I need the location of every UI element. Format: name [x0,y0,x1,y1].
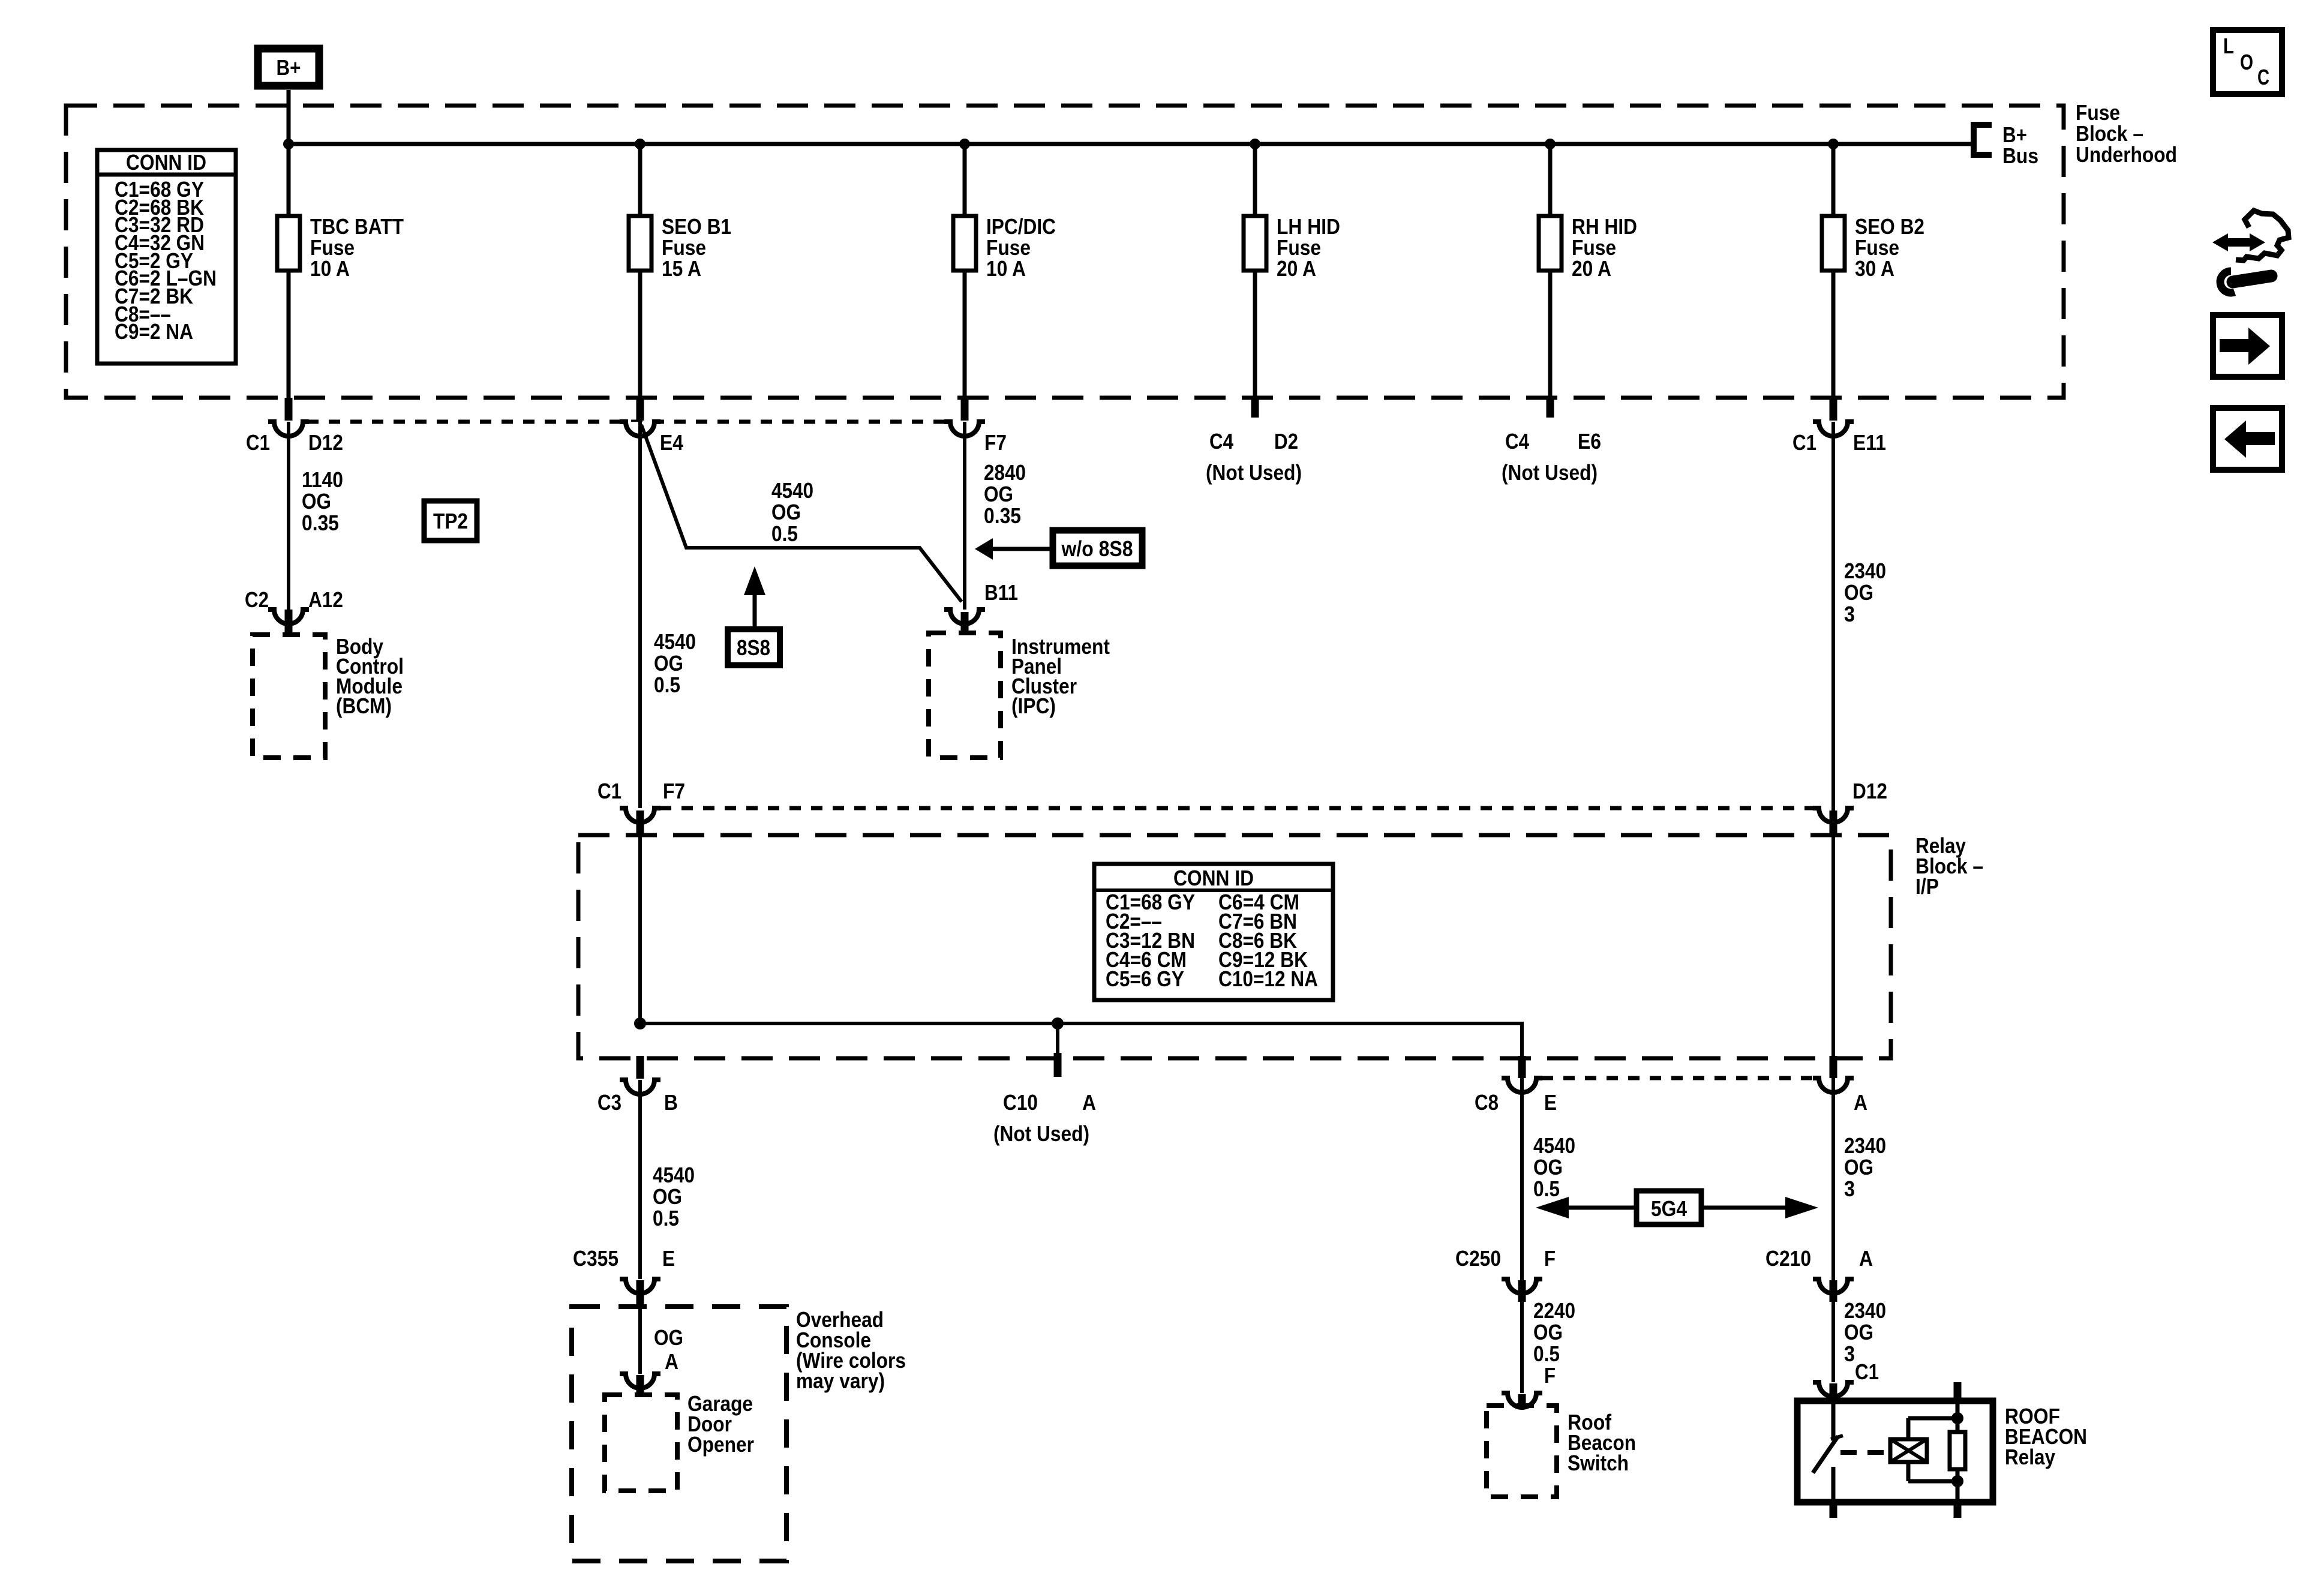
svg-text:OG: OG [1844,1320,1873,1344]
svg-text:0.5: 0.5 [771,521,798,546]
svg-text:3: 3 [1844,1341,1855,1366]
svg-text:0.5: 0.5 [1533,1176,1560,1201]
svg-text:4540: 4540 [654,629,696,654]
svg-text:Opener: Opener [687,1432,754,1457]
svg-text:5G4: 5G4 [1651,1196,1687,1221]
svg-text:C5=6 GY: C5=6 GY [1106,966,1184,991]
svg-text:C1: C1 [246,430,270,455]
svg-text:E: E [1544,1090,1557,1115]
svg-text:Relay: Relay [2005,1445,2055,1469]
svg-text:C3: C3 [597,1090,621,1115]
svg-text:C8: C8 [1475,1090,1499,1115]
svg-text:C10=12 NA: C10=12 NA [1218,966,1318,991]
svg-text:C4: C4 [1209,429,1233,454]
svg-text:3: 3 [1844,1176,1855,1201]
svg-text:OG: OG [1844,1155,1873,1179]
svg-text:OG: OG [654,1325,683,1350]
svg-text:C250: C250 [1455,1246,1501,1271]
svg-text:0.35: 0.35 [984,503,1021,528]
svg-text:(IPC): (IPC) [1011,694,1056,718]
svg-text:C355: C355 [573,1246,618,1271]
svg-text:(Not Used): (Not Used) [1206,460,1302,485]
svg-text:Underhood: Underhood [2076,142,2177,167]
svg-text:D2: D2 [1274,429,1298,454]
svg-text:1140: 1140 [302,467,343,492]
svg-text:C210: C210 [1765,1246,1811,1271]
svg-text:C9=2 NA: C9=2 NA [115,319,193,344]
svg-text:A: A [1082,1090,1096,1115]
svg-text:C2: C2 [245,587,269,612]
svg-text:D12: D12 [308,430,343,455]
svg-text:30 A: 30 A [1855,256,1894,281]
svg-text:B: B [664,1090,678,1115]
svg-text:C1: C1 [1855,1359,1879,1384]
svg-text:OG: OG [1844,580,1873,605]
svg-text:F7: F7 [663,779,685,803]
svg-text:OG: OG [302,489,331,514]
svg-text:15 A: 15 A [662,256,701,281]
svg-text:E: E [662,1246,675,1271]
svg-text:OG: OG [1533,1320,1563,1344]
svg-text:0.5: 0.5 [653,1206,679,1230]
svg-text:4540: 4540 [1533,1133,1575,1158]
svg-text:D12: D12 [1852,779,1887,803]
svg-text:F7: F7 [984,430,1007,455]
svg-text:Bus: Bus [2002,143,2038,168]
svg-text:E11: E11 [1853,430,1886,455]
svg-text:20 A: 20 A [1572,256,1611,281]
svg-text:10 A: 10 A [310,256,350,281]
svg-text:C1: C1 [597,779,621,803]
svg-text:2340: 2340 [1844,1298,1886,1323]
svg-text:A12: A12 [308,587,343,612]
svg-text:B+: B+ [277,55,301,80]
svg-text:20 A: 20 A [1277,256,1316,281]
svg-text:C10: C10 [1003,1090,1038,1115]
svg-text:(Not Used): (Not Used) [993,1121,1089,1146]
svg-text:C1: C1 [1792,430,1816,455]
svg-text:w/o 8S8: w/o 8S8 [1061,536,1133,561]
svg-text:3: 3 [1844,602,1855,626]
svg-text:4540: 4540 [771,478,813,503]
svg-text:(BCM): (BCM) [336,694,392,718]
svg-text:CONN ID: CONN ID [126,150,206,175]
svg-text:2340: 2340 [1844,559,1886,583]
svg-text:A: A [665,1349,678,1374]
svg-text:A: A [1854,1090,1867,1115]
svg-text:8S8: 8S8 [737,635,770,660]
svg-text:CONN ID: CONN ID [1173,866,1254,890]
svg-text:0.5: 0.5 [1533,1341,1560,1366]
svg-text:10 A: 10 A [986,256,1026,281]
svg-text:OG: OG [653,1184,682,1209]
svg-text:0.5: 0.5 [654,673,680,697]
svg-text:OG: OG [1533,1155,1563,1179]
svg-text:I/P: I/P [1915,874,1939,899]
svg-text:OG: OG [771,500,801,524]
svg-text:C: C [2257,65,2269,89]
svg-text:L: L [2223,34,2234,58]
svg-text:2340: 2340 [1844,1133,1886,1158]
svg-text:0.35: 0.35 [302,511,339,535]
svg-text:(Not Used): (Not Used) [1502,460,1598,485]
svg-text:A: A [1859,1246,1873,1271]
svg-text:4540: 4540 [653,1163,695,1187]
svg-text:2840: 2840 [984,460,1026,485]
svg-text:OG: OG [654,651,683,676]
svg-text:E6: E6 [1578,429,1601,454]
svg-text:O: O [2240,50,2253,74]
svg-text:TP2: TP2 [433,509,468,533]
svg-text:E4: E4 [660,430,683,455]
svg-text:2240: 2240 [1533,1298,1575,1323]
svg-text:OG: OG [984,482,1013,506]
svg-text:Switch: Switch [1568,1451,1629,1475]
svg-text:F: F [1544,1363,1556,1388]
svg-text:C4: C4 [1505,429,1529,454]
svg-text:F: F [1544,1246,1556,1271]
svg-text:may vary): may vary) [796,1368,885,1393]
svg-text:B11: B11 [984,580,1018,605]
